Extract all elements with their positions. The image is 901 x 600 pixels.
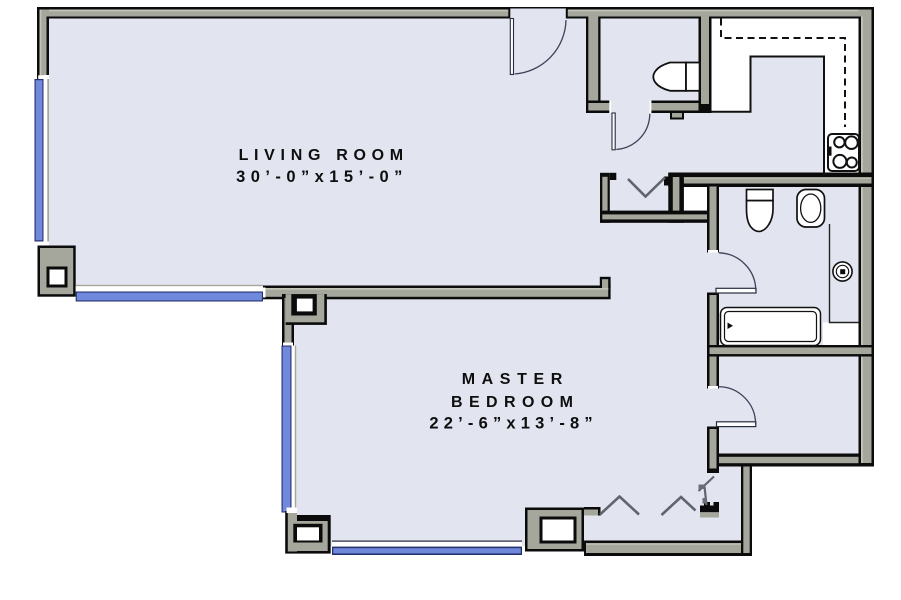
svg-text:22’-6”x13’-8”: 22’-6”x13’-8” [429, 415, 598, 433]
svg-text:LIVING ROOM: LIVING ROOM [239, 147, 409, 164]
svg-text:BEDROOM: BEDROOM [451, 394, 579, 411]
svg-text:MASTER: MASTER [462, 371, 569, 388]
svg-text:30’-0”x15’-0”: 30’-0”x15’-0” [236, 168, 408, 186]
